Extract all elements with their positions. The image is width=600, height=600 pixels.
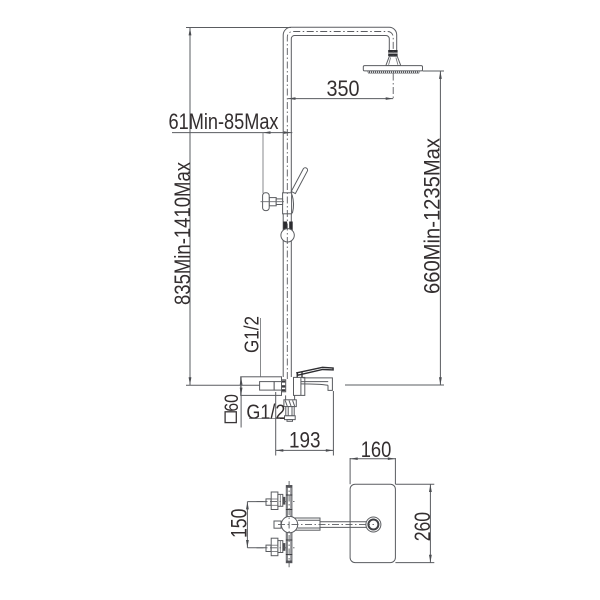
svg-text:G1/2: G1/2 [246, 401, 285, 424]
svg-text:350: 350 [327, 76, 360, 101]
svg-text:835Min-1410Max: 835Min-1410Max [170, 162, 195, 305]
svg-text:150: 150 [227, 509, 252, 539]
svg-text:G1/2: G1/2 [242, 316, 264, 353]
svg-text:160: 160 [361, 437, 392, 462]
svg-text:260: 260 [410, 512, 435, 541]
svg-text:193: 193 [289, 428, 321, 453]
svg-text:61Min-85Max: 61Min-85Max [169, 109, 279, 134]
svg-text:660Min-1235Max: 660Min-1235Max [420, 138, 445, 294]
svg-text:60: 60 [222, 394, 243, 412]
